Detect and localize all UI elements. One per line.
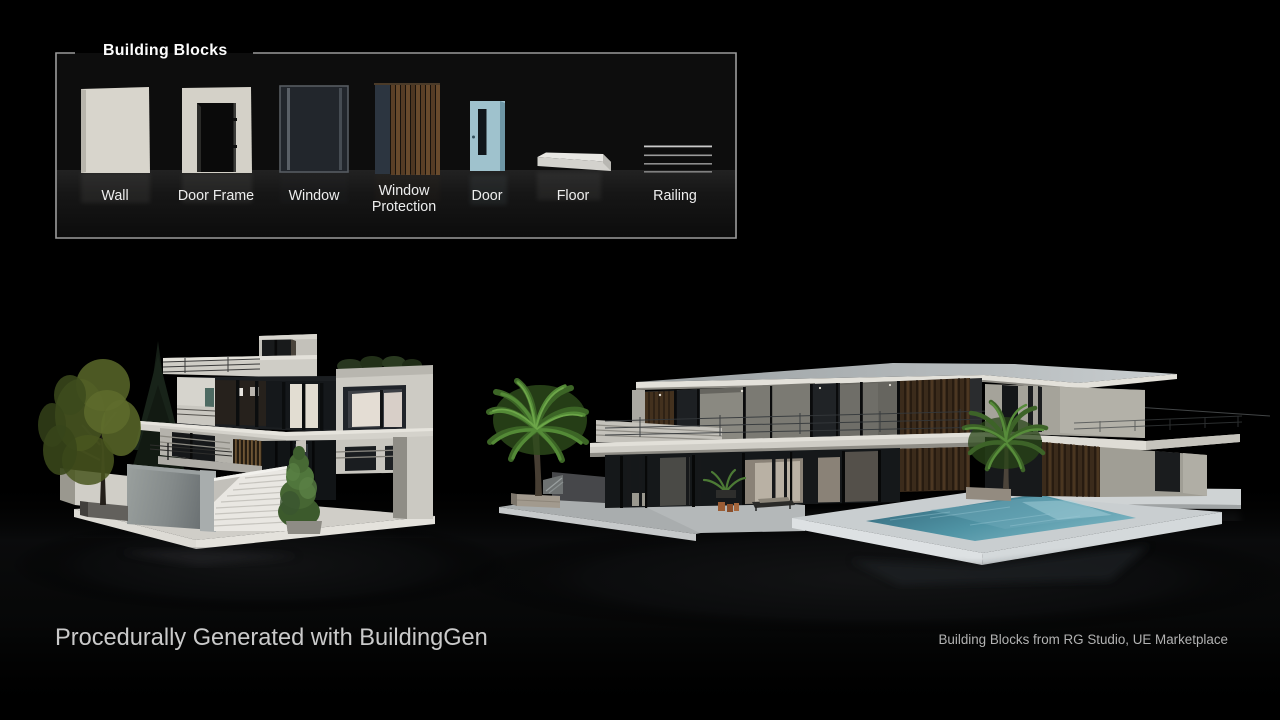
svg-text:Window: Window — [289, 188, 341, 204]
svg-text:Protection: Protection — [372, 199, 436, 215]
svg-text:Procedurally Generated with Bu: Procedurally Generated with BuildingGen — [55, 625, 488, 651]
svg-text:Building Blocks from RG Studio: Building Blocks from RG Studio, UE Marke… — [938, 632, 1228, 647]
svg-text:Window: Window — [379, 183, 431, 199]
svg-text:Railing: Railing — [653, 188, 697, 204]
svg-text:Wall: Wall — [101, 188, 128, 204]
svg-text:Door Frame: Door Frame — [178, 188, 254, 204]
svg-text:Door: Door — [472, 188, 503, 204]
svg-text:Floor: Floor — [557, 188, 590, 204]
svg-text:Building Blocks: Building Blocks — [103, 42, 228, 59]
